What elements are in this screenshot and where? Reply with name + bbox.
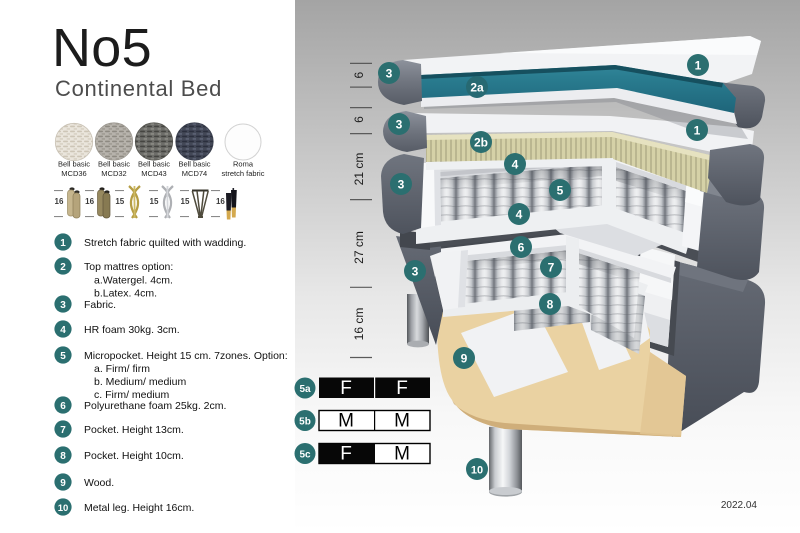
svg-text:Metal leg. Height 16cm.: Metal leg. Height 16cm.: [84, 502, 194, 514]
svg-text:F: F: [396, 378, 408, 399]
svg-text:Pocket. Height 13cm.: Pocket. Height 13cm.: [84, 424, 184, 436]
svg-text:a. Firm/ firm: a. Firm/ firm: [94, 363, 150, 375]
svg-text:M: M: [394, 411, 410, 432]
svg-text:7: 7: [60, 425, 66, 436]
svg-text:1: 1: [694, 124, 701, 138]
svg-text:4: 4: [512, 158, 519, 172]
svg-text:Bell basic: Bell basic: [98, 160, 130, 169]
svg-text:8: 8: [547, 298, 554, 312]
svg-text:3: 3: [60, 300, 66, 311]
svg-text:MCD74: MCD74: [182, 169, 207, 178]
svg-text:Wood.: Wood.: [84, 477, 114, 489]
svg-text:Top mattres option:: Top mattres option:: [84, 261, 173, 273]
svg-text:Bell basic: Bell basic: [178, 160, 210, 169]
svg-text:10: 10: [471, 465, 483, 477]
svg-text:1: 1: [60, 238, 66, 249]
svg-text:2b: 2b: [474, 136, 488, 150]
svg-text:b.Latex. 4cm.: b.Latex. 4cm.: [94, 288, 157, 300]
svg-text:Micropocket. Height 15 cm. 7zo: Micropocket. Height 15 cm. 7zones. Optio…: [84, 350, 288, 362]
svg-text:stretch fabric: stretch fabric: [222, 169, 265, 178]
svg-text:6: 6: [352, 72, 366, 79]
svg-text:Roma: Roma: [233, 160, 254, 169]
svg-text:8: 8: [60, 451, 66, 462]
svg-text:4: 4: [516, 208, 523, 222]
svg-text:15: 15: [181, 197, 190, 206]
svg-text:F: F: [340, 444, 352, 465]
svg-text:a.Watergel. 4cm.: a.Watergel. 4cm.: [94, 274, 173, 286]
svg-text:10: 10: [58, 503, 69, 514]
svg-text:MCD43: MCD43: [141, 169, 166, 178]
svg-text:15: 15: [115, 197, 124, 206]
svg-text:2: 2: [60, 262, 66, 273]
svg-text:9: 9: [60, 478, 66, 489]
svg-text:6: 6: [60, 401, 66, 412]
svg-text:b. Medium/ medium: b. Medium/ medium: [94, 376, 186, 388]
svg-text:16: 16: [55, 197, 64, 206]
svg-text:2022.04: 2022.04: [721, 500, 758, 511]
svg-text:Pocket. Height 10cm.: Pocket. Height 10cm.: [84, 450, 184, 462]
svg-text:4: 4: [60, 325, 66, 336]
svg-text:15: 15: [150, 197, 159, 206]
svg-text:HR foam 30kg. 3cm.: HR foam 30kg. 3cm.: [84, 324, 180, 336]
svg-text:5: 5: [557, 184, 564, 198]
svg-text:21 cm: 21 cm: [352, 153, 366, 186]
svg-text:Polyurethane foam 25kg. 2cm.: Polyurethane foam 25kg. 2cm.: [84, 400, 226, 412]
svg-text:Bell basic: Bell basic: [58, 160, 90, 169]
svg-text:3: 3: [398, 178, 405, 192]
svg-text:1: 1: [695, 59, 702, 73]
svg-text:6: 6: [518, 241, 525, 255]
svg-text:F: F: [340, 378, 352, 399]
svg-text:27 cm: 27 cm: [352, 231, 366, 264]
svg-text:Bell basic: Bell basic: [138, 160, 170, 169]
svg-text:M: M: [338, 411, 354, 432]
svg-text:6: 6: [352, 116, 366, 123]
svg-text:16 cm: 16 cm: [352, 308, 366, 341]
svg-text:M: M: [394, 444, 410, 465]
svg-text:2a: 2a: [470, 81, 484, 95]
svg-text:3: 3: [386, 67, 393, 81]
svg-text:3: 3: [412, 265, 419, 279]
svg-text:16: 16: [216, 197, 225, 206]
svg-text:3: 3: [396, 118, 403, 132]
svg-text:5b: 5b: [299, 417, 311, 428]
svg-text:Stretch fabric quilted with wa: Stretch fabric quilted with wadding.: [84, 237, 246, 249]
svg-text:No5: No5: [52, 18, 152, 78]
svg-text:7: 7: [548, 261, 555, 275]
svg-text:Fabric.: Fabric.: [84, 299, 116, 311]
svg-text:5c: 5c: [299, 450, 311, 461]
svg-text:Continental Bed: Continental Bed: [55, 76, 222, 101]
svg-text:9: 9: [461, 352, 468, 366]
svg-text:5a: 5a: [299, 384, 311, 395]
svg-text:5: 5: [60, 351, 66, 362]
svg-text:MCD36: MCD36: [61, 169, 86, 178]
svg-text:16: 16: [85, 197, 94, 206]
svg-text:MCD32: MCD32: [101, 169, 126, 178]
